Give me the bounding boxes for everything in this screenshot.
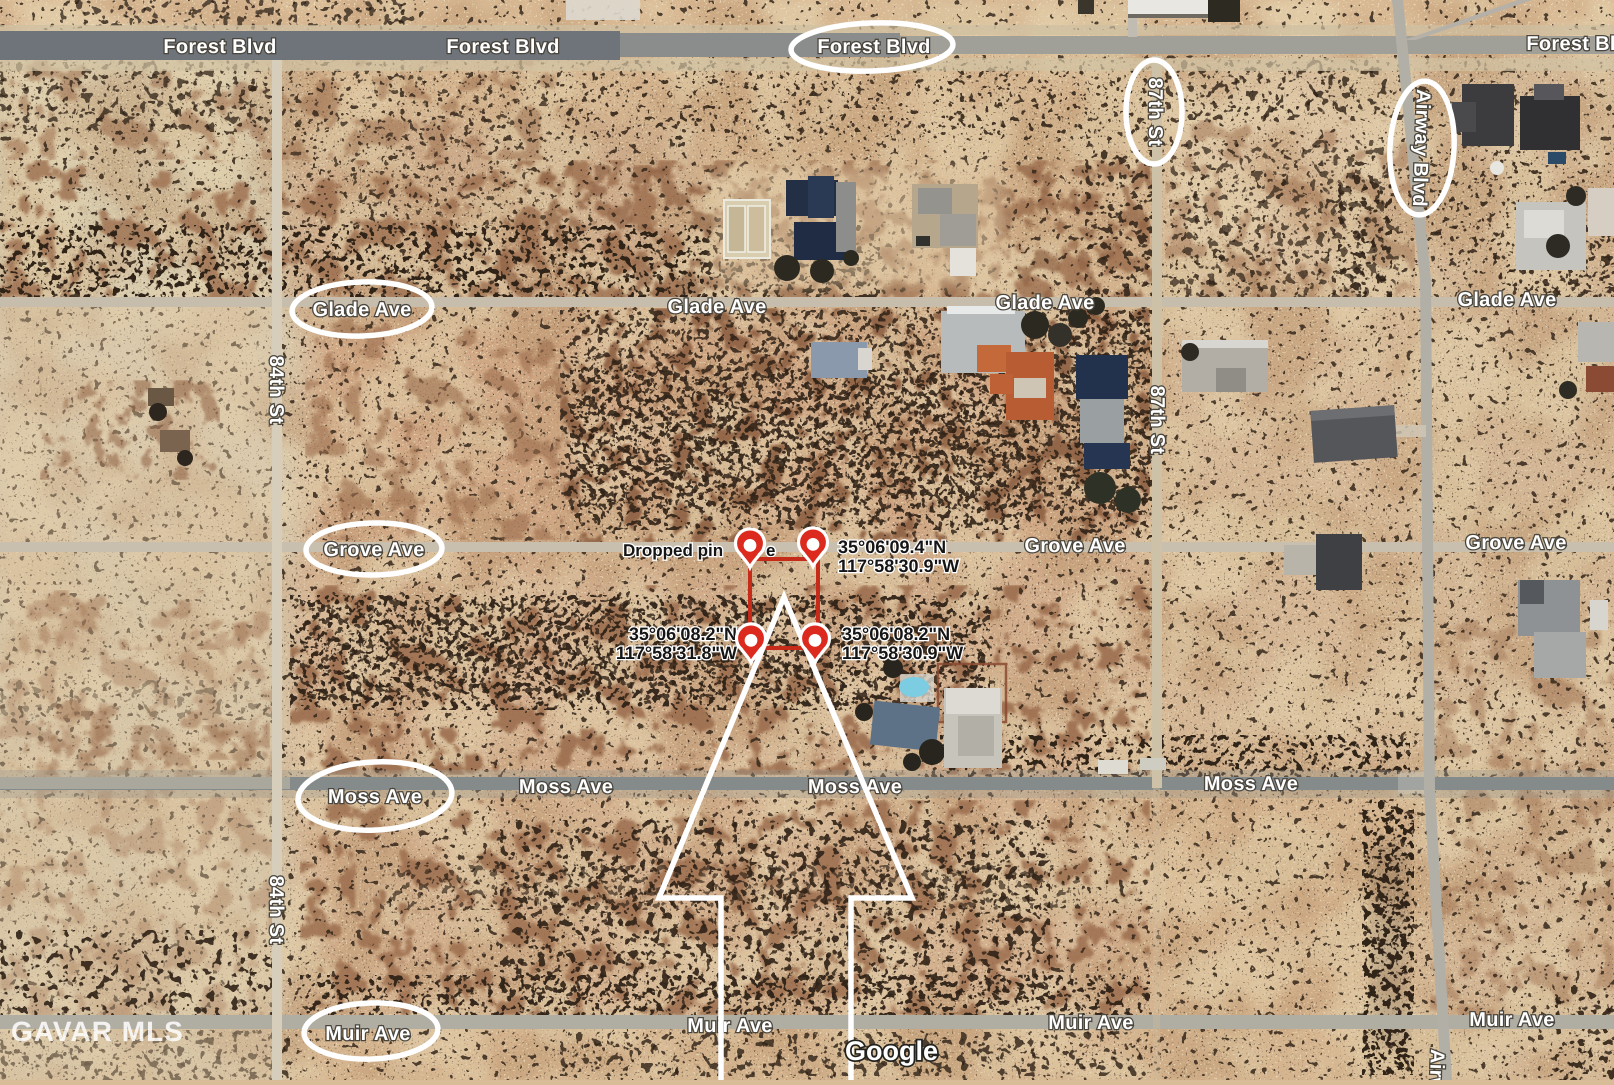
svg-text:Moss Ave: Moss Ave xyxy=(1204,773,1298,795)
svg-text:Google: Google xyxy=(845,1036,938,1066)
svg-text:35°06'09.4"N: 35°06'09.4"N xyxy=(838,537,946,557)
svg-text:Muir Ave: Muir Ave xyxy=(687,1015,772,1037)
svg-text:84th St: 84th St xyxy=(265,876,287,945)
svg-text:117°58'31.8"W: 117°58'31.8"W xyxy=(616,643,737,663)
svg-text:Grove Ave: Grove Ave xyxy=(1024,535,1125,557)
svg-text:Grove Ave: Grove Ave xyxy=(1465,532,1566,554)
svg-text:Glade Ave: Glade Ave xyxy=(1457,289,1556,311)
svg-text:Muir Ave: Muir Ave xyxy=(1469,1009,1554,1031)
svg-text:Forest Blvd: Forest Blvd xyxy=(817,36,930,58)
svg-text:Glade Ave: Glade Ave xyxy=(312,299,411,321)
svg-text:117°58'30.9"W: 117°58'30.9"W xyxy=(838,556,959,576)
svg-text:GAVAR MLS: GAVAR MLS xyxy=(11,1016,184,1047)
svg-text:Forest Blvd: Forest Blvd xyxy=(446,36,559,58)
svg-text:Dropped pin: Dropped pin xyxy=(623,541,723,560)
svg-text:117°58'30.9"W: 117°58'30.9"W xyxy=(842,643,963,663)
svg-text:Glade Ave: Glade Ave xyxy=(667,296,766,318)
svg-text:Muir Ave: Muir Ave xyxy=(325,1023,410,1045)
svg-text:Forest Blvd: Forest Blvd xyxy=(163,36,276,58)
svg-text:Forest Blvd: Forest Blvd xyxy=(1526,33,1614,55)
svg-text:Moss Ave: Moss Ave xyxy=(808,776,902,798)
svg-text:Grove Ave: Grove Ave xyxy=(323,539,424,561)
svg-text:84th St: 84th St xyxy=(265,356,287,425)
svg-text:Moss Ave: Moss Ave xyxy=(328,786,422,808)
svg-text:Glade Ave: Glade Ave xyxy=(995,292,1094,314)
svg-text:87th St: 87th St xyxy=(1144,78,1166,147)
svg-text:Moss Ave: Moss Ave xyxy=(519,776,613,798)
svg-text:Muir Ave: Muir Ave xyxy=(1048,1012,1133,1034)
svg-text:Airway Blvd: Airway Blvd xyxy=(1408,89,1434,207)
svg-text:87th St: 87th St xyxy=(1146,386,1168,455)
svg-text:35°06'08.2"N: 35°06'08.2"N xyxy=(842,624,950,644)
svg-text:35°06'08.2"N: 35°06'08.2"N xyxy=(629,624,737,644)
